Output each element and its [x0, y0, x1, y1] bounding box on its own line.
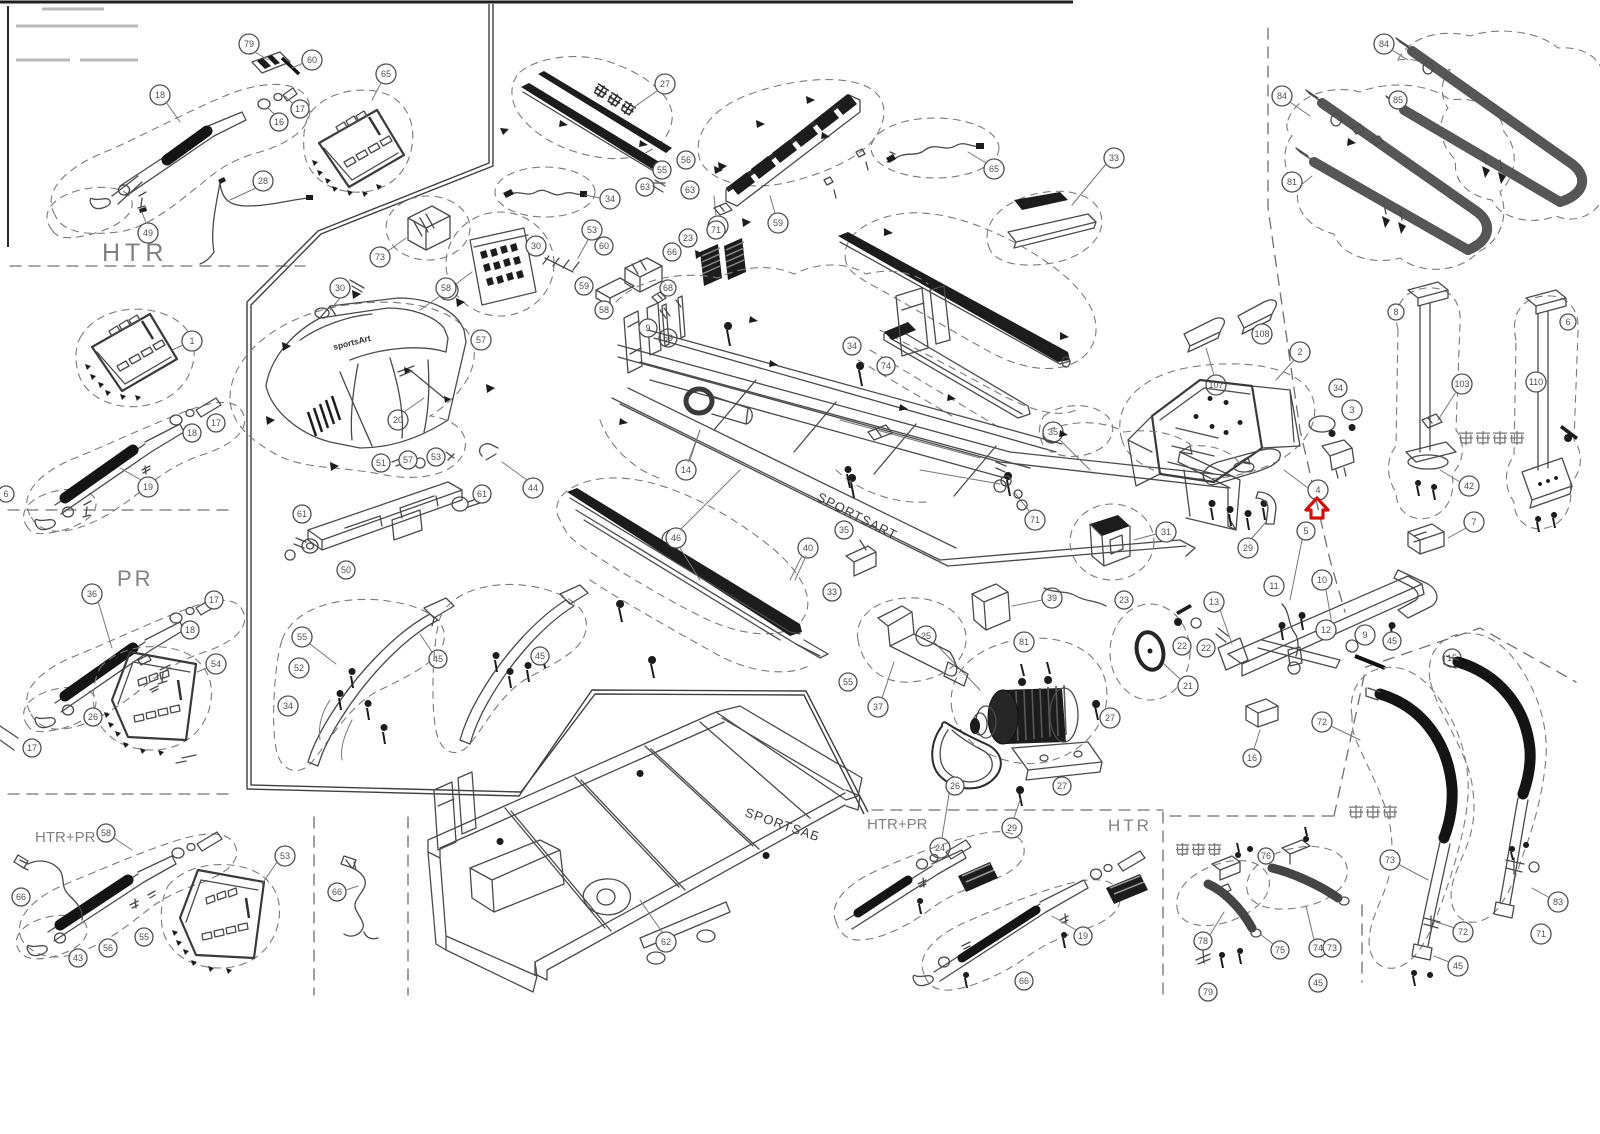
svg-text:3: 3	[1349, 405, 1354, 415]
svg-text:18: 18	[155, 90, 165, 100]
svg-text:30: 30	[531, 241, 541, 251]
svg-text:44: 44	[528, 483, 538, 493]
svg-text:23: 23	[683, 233, 693, 243]
svg-text:HTR: HTR	[1108, 816, 1152, 835]
svg-text:39: 39	[1047, 593, 1057, 603]
svg-text:10: 10	[1317, 575, 1327, 585]
svg-text:18: 18	[185, 625, 195, 635]
svg-text:49: 49	[143, 228, 153, 238]
svg-text:53: 53	[587, 225, 597, 235]
svg-text:11: 11	[1269, 581, 1278, 591]
svg-text:60: 60	[307, 55, 317, 65]
svg-text:22: 22	[1201, 643, 1211, 653]
svg-text:66: 66	[332, 887, 342, 897]
svg-text:1: 1	[189, 336, 194, 346]
svg-text:53: 53	[431, 452, 441, 462]
svg-text:50: 50	[341, 565, 351, 575]
svg-text:26: 26	[88, 712, 98, 722]
svg-text:55: 55	[657, 165, 667, 175]
svg-text:21: 21	[1183, 681, 1193, 691]
svg-text:71: 71	[1536, 929, 1546, 939]
svg-text:18: 18	[187, 428, 197, 438]
svg-text:14: 14	[681, 465, 691, 475]
svg-text:66: 66	[1019, 976, 1029, 986]
svg-text:57: 57	[476, 335, 486, 345]
svg-text:9: 9	[645, 323, 650, 333]
svg-text:57: 57	[403, 455, 413, 465]
svg-text:4: 4	[1315, 485, 1320, 495]
svg-text:61: 61	[477, 489, 487, 499]
svg-text:27: 27	[1057, 781, 1067, 791]
svg-text:27: 27	[1105, 713, 1115, 723]
svg-text:45: 45	[1313, 978, 1323, 988]
svg-text:8: 8	[1393, 307, 1398, 317]
svg-text:78: 78	[1198, 936, 1208, 946]
svg-text:17: 17	[27, 743, 37, 753]
svg-text:16: 16	[1247, 753, 1257, 763]
svg-text:55: 55	[297, 632, 307, 642]
svg-text:83: 83	[1553, 897, 1563, 907]
svg-text:17: 17	[209, 595, 219, 605]
svg-text:45: 45	[1453, 961, 1463, 971]
svg-text:52: 52	[294, 663, 304, 673]
svg-text:29: 29	[1243, 543, 1253, 553]
svg-text:34: 34	[847, 341, 857, 351]
svg-text:54: 54	[211, 659, 221, 669]
svg-text:51: 51	[376, 458, 386, 468]
svg-text:19: 19	[143, 482, 153, 492]
svg-text:12: 12	[1321, 625, 1331, 635]
svg-text:63: 63	[640, 182, 650, 192]
svg-text:84: 84	[1277, 91, 1287, 101]
svg-text:56: 56	[103, 943, 113, 953]
svg-text:HTR+PR: HTR+PR	[867, 816, 928, 833]
svg-text:33: 33	[827, 587, 837, 597]
svg-text:84: 84	[1379, 39, 1389, 49]
svg-text:63: 63	[685, 185, 695, 195]
svg-text:6: 6	[3, 489, 8, 499]
svg-text:27: 27	[660, 79, 670, 89]
svg-text:45: 45	[1387, 636, 1397, 646]
svg-text:59: 59	[773, 218, 783, 228]
svg-text:29: 29	[1007, 823, 1017, 833]
svg-text:73: 73	[1385, 855, 1395, 865]
svg-text:103: 103	[1454, 379, 1469, 389]
svg-text:60: 60	[599, 241, 609, 251]
svg-text:9: 9	[1362, 630, 1367, 640]
svg-text:34: 34	[605, 194, 615, 204]
svg-text:65: 65	[989, 164, 999, 174]
svg-text:61: 61	[297, 509, 307, 519]
svg-text:58: 58	[599, 305, 609, 315]
svg-text:30: 30	[335, 283, 345, 293]
svg-text:75: 75	[1275, 945, 1285, 955]
svg-text:59: 59	[579, 281, 589, 291]
svg-text:22: 22	[1177, 641, 1187, 651]
svg-text:43: 43	[73, 953, 83, 963]
svg-text:55: 55	[139, 932, 149, 942]
svg-text:81: 81	[1287, 177, 1297, 187]
svg-text:55: 55	[843, 677, 853, 687]
svg-text:HTR: HTR	[102, 239, 168, 267]
svg-text:85: 85	[1393, 95, 1403, 105]
svg-text:17: 17	[211, 418, 221, 428]
svg-text:71: 71	[711, 225, 721, 235]
svg-text:42: 42	[1464, 481, 1474, 491]
svg-text:7: 7	[1471, 517, 1476, 527]
svg-text:74: 74	[1313, 943, 1323, 953]
svg-text:34: 34	[1333, 383, 1343, 393]
svg-text:58: 58	[441, 283, 451, 293]
svg-text:108: 108	[1254, 329, 1269, 339]
svg-text:HTR+PR: HTR+PR	[35, 829, 96, 846]
svg-text:40: 40	[803, 543, 813, 553]
svg-text:16: 16	[274, 117, 284, 127]
svg-text:5: 5	[1303, 526, 1308, 536]
svg-text:66: 66	[16, 892, 26, 902]
svg-text:45: 45	[535, 651, 545, 661]
svg-text:65: 65	[381, 69, 391, 79]
svg-text:17: 17	[295, 104, 305, 114]
svg-text:79: 79	[1203, 987, 1213, 997]
svg-text:36: 36	[87, 589, 97, 599]
svg-text:72: 72	[1317, 717, 1327, 727]
svg-text:35: 35	[839, 525, 849, 535]
svg-text:73: 73	[375, 252, 385, 262]
svg-text:110: 110	[1529, 377, 1543, 387]
svg-text:74: 74	[881, 361, 891, 371]
svg-text:13: 13	[1209, 597, 1219, 607]
svg-text:37: 37	[873, 702, 883, 712]
svg-text:72: 72	[1458, 927, 1468, 937]
svg-text:19: 19	[1078, 931, 1088, 941]
svg-text:31: 31	[1161, 527, 1171, 537]
svg-text:79: 79	[244, 39, 254, 49]
svg-text:2: 2	[1297, 347, 1302, 357]
svg-text:23: 23	[1119, 595, 1129, 605]
svg-text:34: 34	[283, 701, 293, 711]
svg-text:71: 71	[1030, 515, 1040, 525]
svg-text:58: 58	[101, 828, 111, 838]
svg-text:56: 56	[681, 155, 691, 165]
svg-text:33: 33	[1109, 153, 1119, 163]
svg-text:66: 66	[667, 247, 677, 257]
svg-text:76: 76	[1261, 851, 1271, 861]
svg-text:26: 26	[950, 781, 960, 791]
svg-text:62: 62	[661, 937, 671, 947]
svg-text:81: 81	[1019, 637, 1029, 647]
svg-text:PR: PR	[117, 566, 154, 591]
svg-text:28: 28	[258, 176, 268, 186]
svg-text:68: 68	[663, 283, 673, 293]
svg-text:6: 6	[1565, 317, 1570, 327]
svg-text:53: 53	[280, 851, 290, 861]
svg-text:46: 46	[671, 533, 681, 543]
svg-text:73: 73	[1327, 943, 1337, 953]
